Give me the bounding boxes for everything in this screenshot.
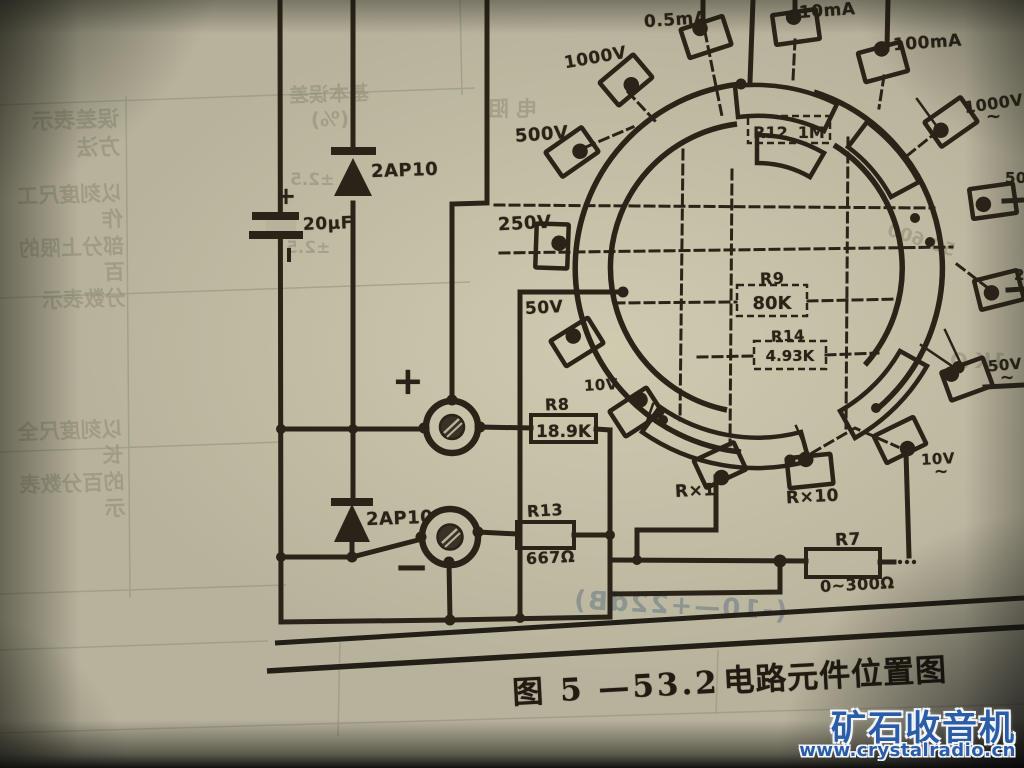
label-diode-top: 2AP10 [371, 161, 439, 181]
label-1000V-right-tilde: ~ [986, 108, 1002, 126]
label-r13-value: 667Ω [526, 549, 576, 568]
jack-positive [419, 395, 486, 454]
label-r14-ref: R14 [771, 328, 805, 344]
label-10V-left: 10V [584, 377, 619, 394]
label-capacitor: 20μF [303, 215, 353, 234]
label-250V-right: 250V [1014, 268, 1024, 283]
label-rx10: R×10 [786, 488, 840, 508]
label-10V-ac-tilde: ~ [934, 464, 949, 481]
label-r9-ref: R9 [760, 271, 785, 288]
label-0.5mA: 0.5mA [643, 10, 708, 31]
label-50V-left: 50V [525, 299, 564, 318]
label-10mA: 10mA [798, 1, 856, 22]
switch-contact-50V-ac [940, 355, 993, 401]
plus-sign-jack: + [392, 362, 424, 400]
label-r12-ref: R12 [753, 121, 788, 144]
resistor-box-r7 [806, 549, 880, 577]
plus-sign-capacitor: + [276, 184, 297, 208]
label-100mA: 100mA [892, 33, 962, 55]
label-r12: R12 1M [748, 121, 830, 144]
switch-contact-50V [550, 318, 603, 367]
label-r8-ref: R8 [545, 397, 570, 414]
minus-sign-jack: − [394, 546, 430, 588]
label-r14-value: 4.93K [754, 346, 826, 368]
label-500V-left: 500V [514, 124, 569, 146]
faint-table-lines [0, 0, 1024, 736]
diode-top-symbol [331, 147, 376, 196]
label-r7-value: 0~300Ω [820, 575, 895, 595]
label-rx1: R×1 [675, 482, 717, 501]
label-r8-value: 18.9K [531, 420, 596, 445]
label-50V-ac-tilde: ~ [1000, 370, 1015, 387]
label-r12-value: 1M [798, 121, 825, 144]
label-diode-bottom: 2AP10 [366, 509, 434, 529]
capacitor-symbol [249, 212, 303, 262]
label-500V-right: 500V [1005, 171, 1024, 186]
label-r13-ref: R13 [527, 502, 564, 520]
label-r7-ref: R7 [835, 531, 862, 549]
book-page-photo: 误差表示 方法 以刻度尺工作 部分上限的百 分数表示 以刻度尺全长 的百分数表示… [0, 0, 1024, 768]
label-250V-left: 250V [498, 214, 552, 235]
label-r9-value: 80K [737, 291, 807, 317]
resistor-box-r13 [517, 522, 574, 548]
watermark-site-url: www.crystalradio.cn [799, 740, 1016, 761]
